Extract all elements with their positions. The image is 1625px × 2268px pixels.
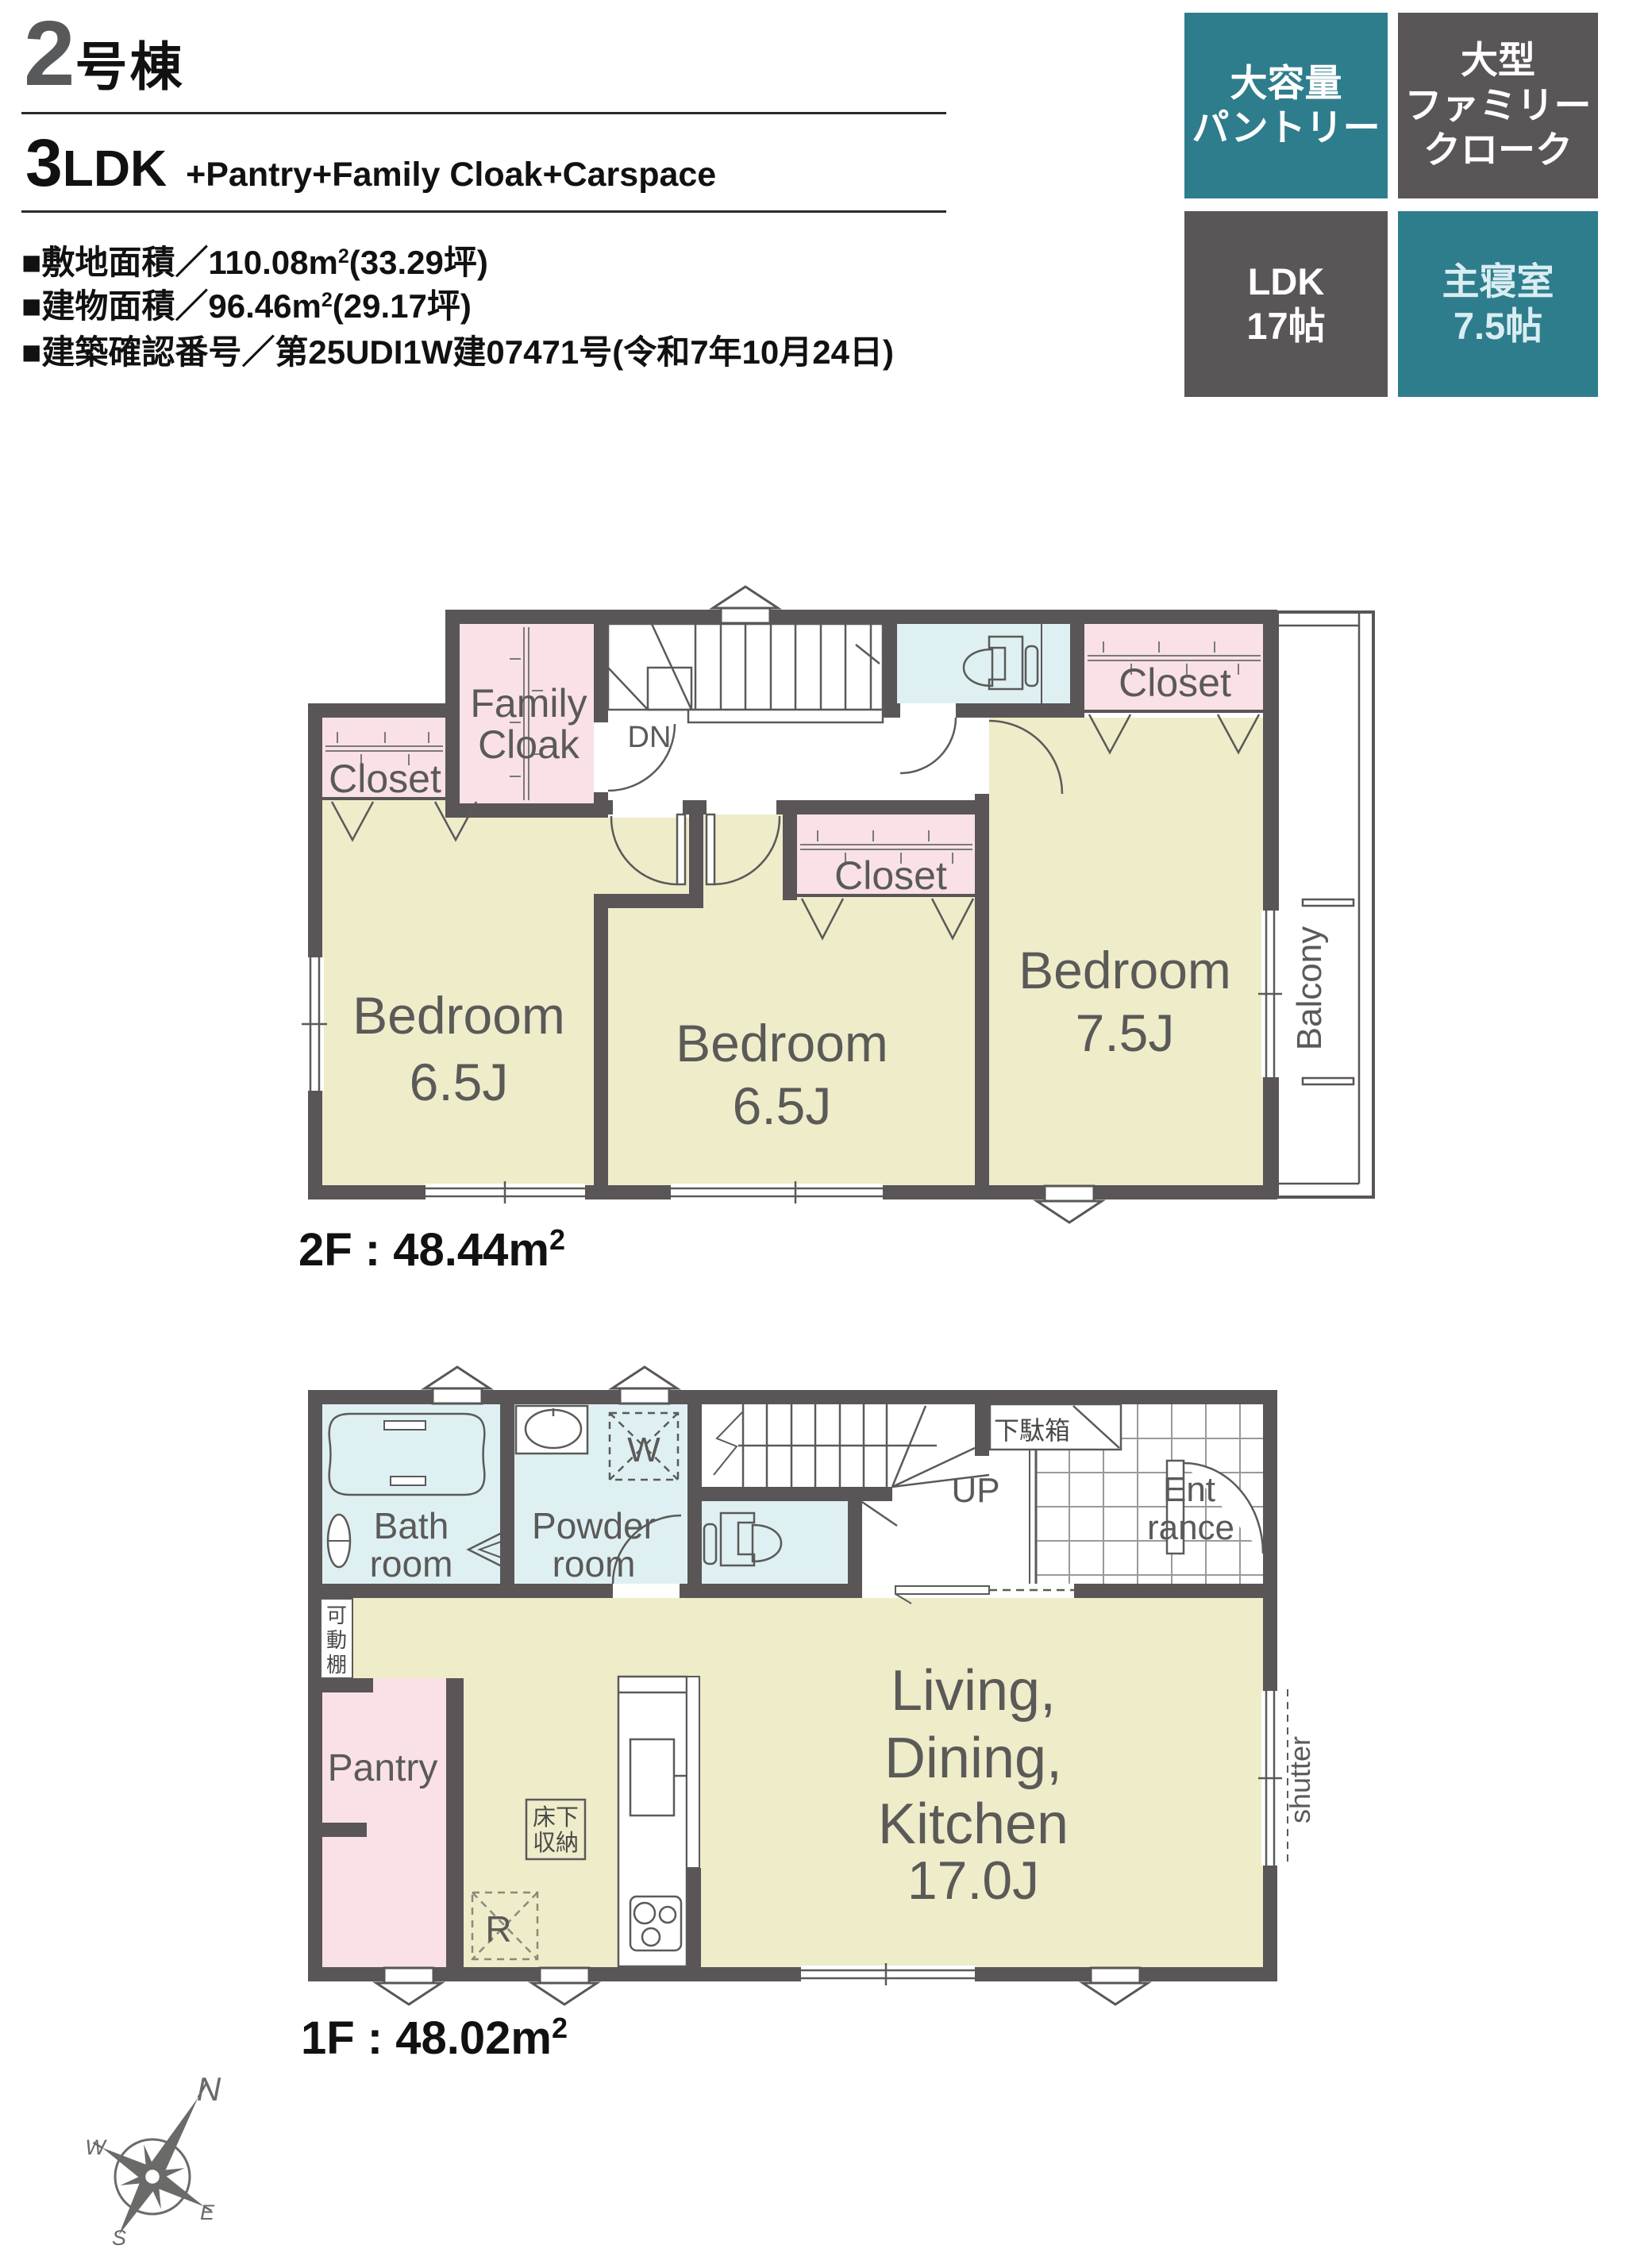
svg-text:R: R — [485, 1908, 511, 1950]
svg-text:room: room — [553, 1543, 636, 1585]
svg-text:1F : 48.02m2: 1F : 48.02m2 — [301, 2012, 568, 2064]
svg-text:Living,: Living, — [891, 1659, 1056, 1723]
svg-text:Bath: Bath — [374, 1505, 449, 1546]
svg-text:Balcony: Balcony — [1290, 926, 1329, 1051]
svg-text:Bedroom: Bedroom — [352, 986, 565, 1045]
svg-text:6.5J: 6.5J — [733, 1076, 832, 1135]
svg-text:W: W — [627, 1430, 660, 1469]
svg-text:7.5J: 7.5J — [1076, 1003, 1175, 1062]
svg-text:Closet: Closet — [329, 757, 441, 801]
svg-text:Powder: Powder — [532, 1505, 656, 1546]
svg-text:床下: 床下 — [533, 1804, 579, 1831]
svg-text:N: N — [197, 2070, 221, 2108]
svg-text:W: W — [85, 2135, 107, 2159]
svg-text:Closet: Closet — [1119, 660, 1231, 705]
svg-text:Kitchen: Kitchen — [878, 1792, 1069, 1856]
svg-text:E: E — [200, 2201, 215, 2224]
svg-text:2F : 48.44m2: 2F : 48.44m2 — [298, 1223, 565, 1276]
svg-text:17.0J: 17.0J — [907, 1850, 1039, 1911]
svg-text:Pantry: Pantry — [328, 1747, 438, 1789]
svg-text:Family: Family — [470, 681, 587, 726]
svg-text:S: S — [112, 2226, 126, 2250]
svg-text:shutter: shutter — [1284, 1736, 1316, 1823]
svg-text:下駄箱: 下駄箱 — [994, 1416, 1070, 1445]
svg-text:rance: rance — [1147, 1508, 1234, 1547]
svg-text:Cloak: Cloak — [478, 722, 580, 767]
svg-text:収納: 収納 — [533, 1830, 579, 1856]
svg-text:Bedroom: Bedroom — [676, 1014, 888, 1072]
svg-text:6.5J: 6.5J — [410, 1053, 509, 1111]
svg-text:Closet: Closet — [834, 853, 947, 898]
svg-text:Dining,: Dining, — [884, 1727, 1062, 1790]
svg-text:Bedroom: Bedroom — [1019, 941, 1231, 999]
svg-text:room: room — [370, 1543, 453, 1585]
svg-text:棚: 棚 — [326, 1653, 347, 1677]
svg-text:Ent: Ent — [1163, 1470, 1215, 1509]
svg-text:可: 可 — [326, 1604, 347, 1627]
svg-text:DN: DN — [628, 721, 672, 754]
svg-text:UP: UP — [951, 1471, 999, 1510]
svg-text:動: 動 — [326, 1628, 347, 1652]
